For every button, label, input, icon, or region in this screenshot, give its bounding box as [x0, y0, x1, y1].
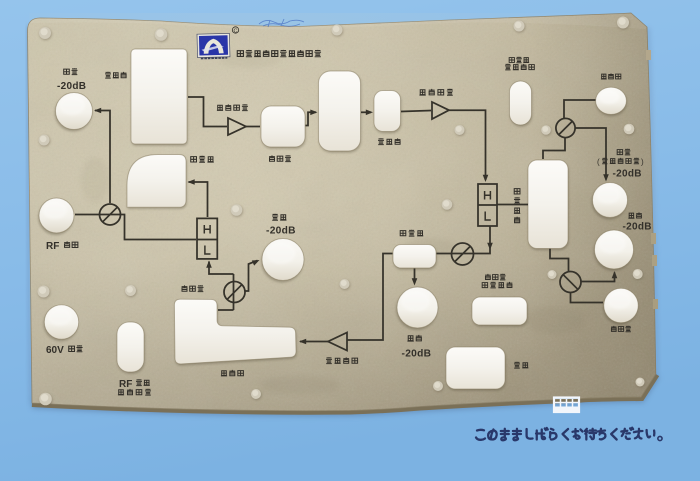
svg-text:(: ( [597, 158, 600, 167]
svg-text:RF: RF [46, 241, 59, 252]
svg-text:C: C [234, 28, 238, 34]
svg-text:-20dB: -20dB [57, 81, 86, 92]
svg-text:-20dB: -20dB [402, 349, 432, 360]
svg-text:-20dB: -20dB [623, 222, 652, 233]
svg-text:-20dB: -20dB [266, 226, 296, 237]
svg-text:RF: RF [119, 379, 132, 390]
svg-text:-20dB: -20dB [613, 169, 642, 180]
svg-text:): ) [641, 158, 644, 167]
svg-text:60V: 60V [46, 345, 64, 356]
